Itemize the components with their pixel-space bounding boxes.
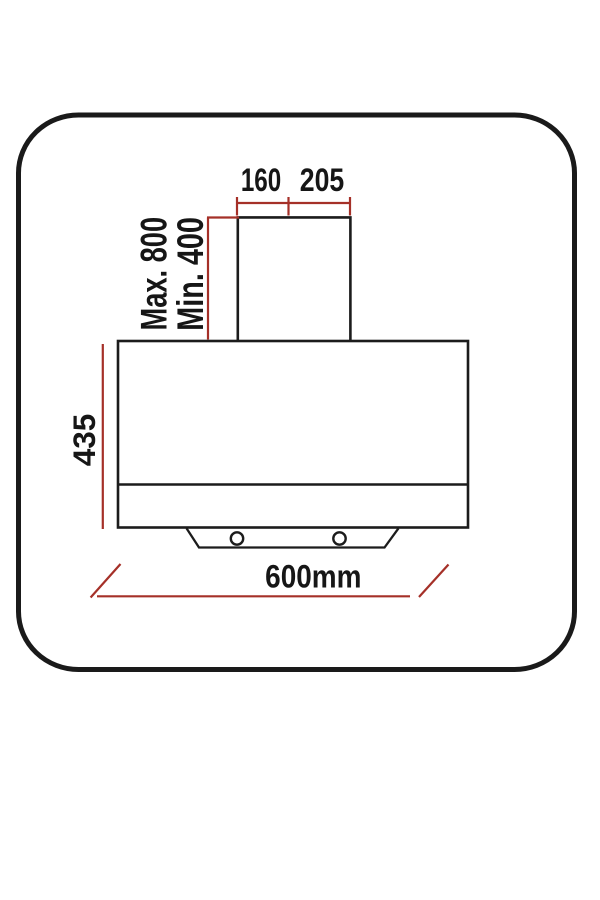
svg-text:Max. 800: Max. 800 (132, 217, 174, 331)
svg-text:435: 435 (66, 414, 102, 467)
svg-text:Min. 400: Min. 400 (170, 217, 211, 331)
svg-text:160: 160 (241, 163, 281, 199)
svg-text:205: 205 (300, 163, 344, 199)
svg-text:600mm: 600mm (265, 560, 361, 595)
